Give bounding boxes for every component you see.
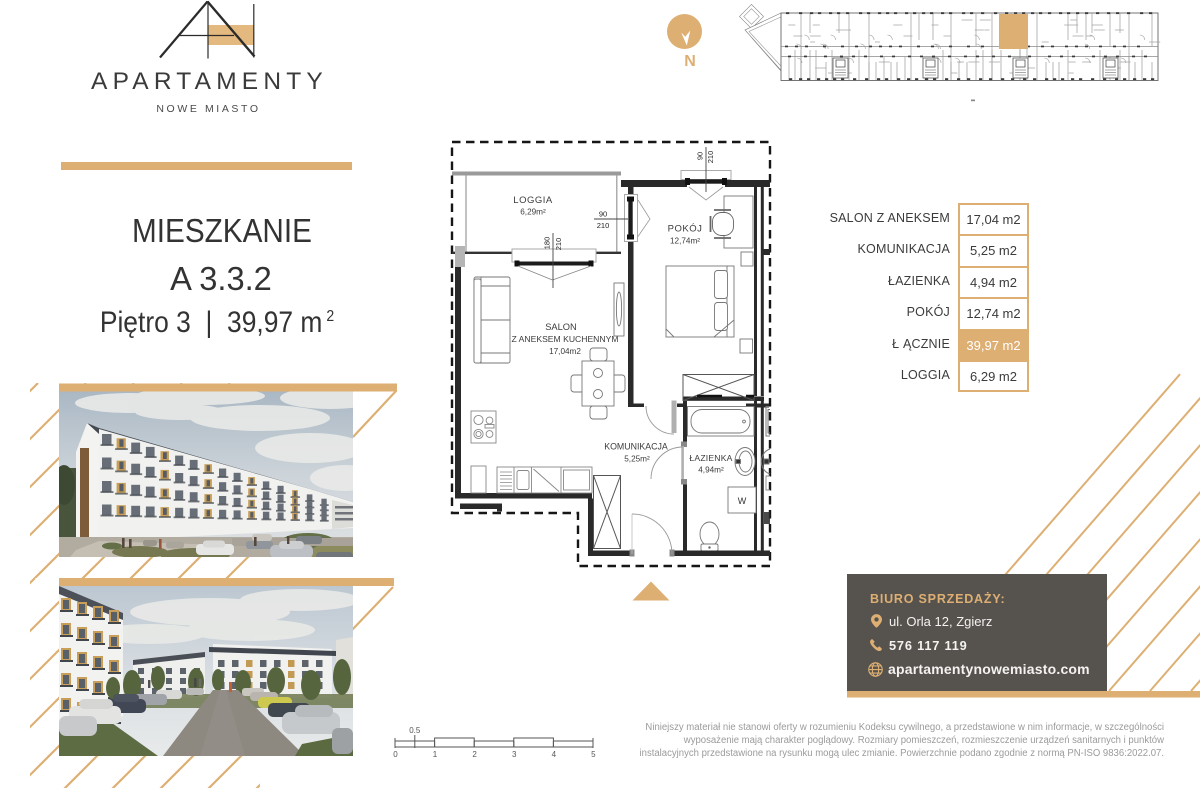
svg-text:1: 1 xyxy=(433,750,438,759)
svg-text:N: N xyxy=(684,53,696,70)
svg-text:5,25m²: 5,25m² xyxy=(624,455,650,464)
svg-text:210: 210 xyxy=(706,151,715,164)
svg-text:Z ANEKSEM KUCHENNYM: Z ANEKSEM KUCHENNYM xyxy=(512,334,619,344)
svg-text:90: 90 xyxy=(599,210,607,219)
svg-text:210: 210 xyxy=(554,238,563,251)
svg-text:6,29m²: 6,29m² xyxy=(520,208,546,217)
svg-text:90: 90 xyxy=(696,152,705,160)
svg-text:0: 0 xyxy=(393,750,398,759)
svg-text:4,94m²: 4,94m² xyxy=(698,466,724,475)
svg-text:W: W xyxy=(738,496,747,506)
svg-text:ŁAZIENKA: ŁAZIENKA xyxy=(689,453,732,463)
svg-text:0.5: 0.5 xyxy=(409,726,421,735)
svg-text:180: 180 xyxy=(543,237,552,250)
svg-text:KOMUNIKACJA: KOMUNIKACJA xyxy=(604,442,668,452)
svg-text:2: 2 xyxy=(472,750,477,759)
svg-text:17,04m2: 17,04m2 xyxy=(549,347,581,356)
svg-text:3: 3 xyxy=(512,750,517,759)
svg-text:LOGGIA: LOGGIA xyxy=(513,195,553,206)
svg-text:210: 210 xyxy=(597,221,610,230)
svg-text:SALON: SALON xyxy=(545,322,577,332)
